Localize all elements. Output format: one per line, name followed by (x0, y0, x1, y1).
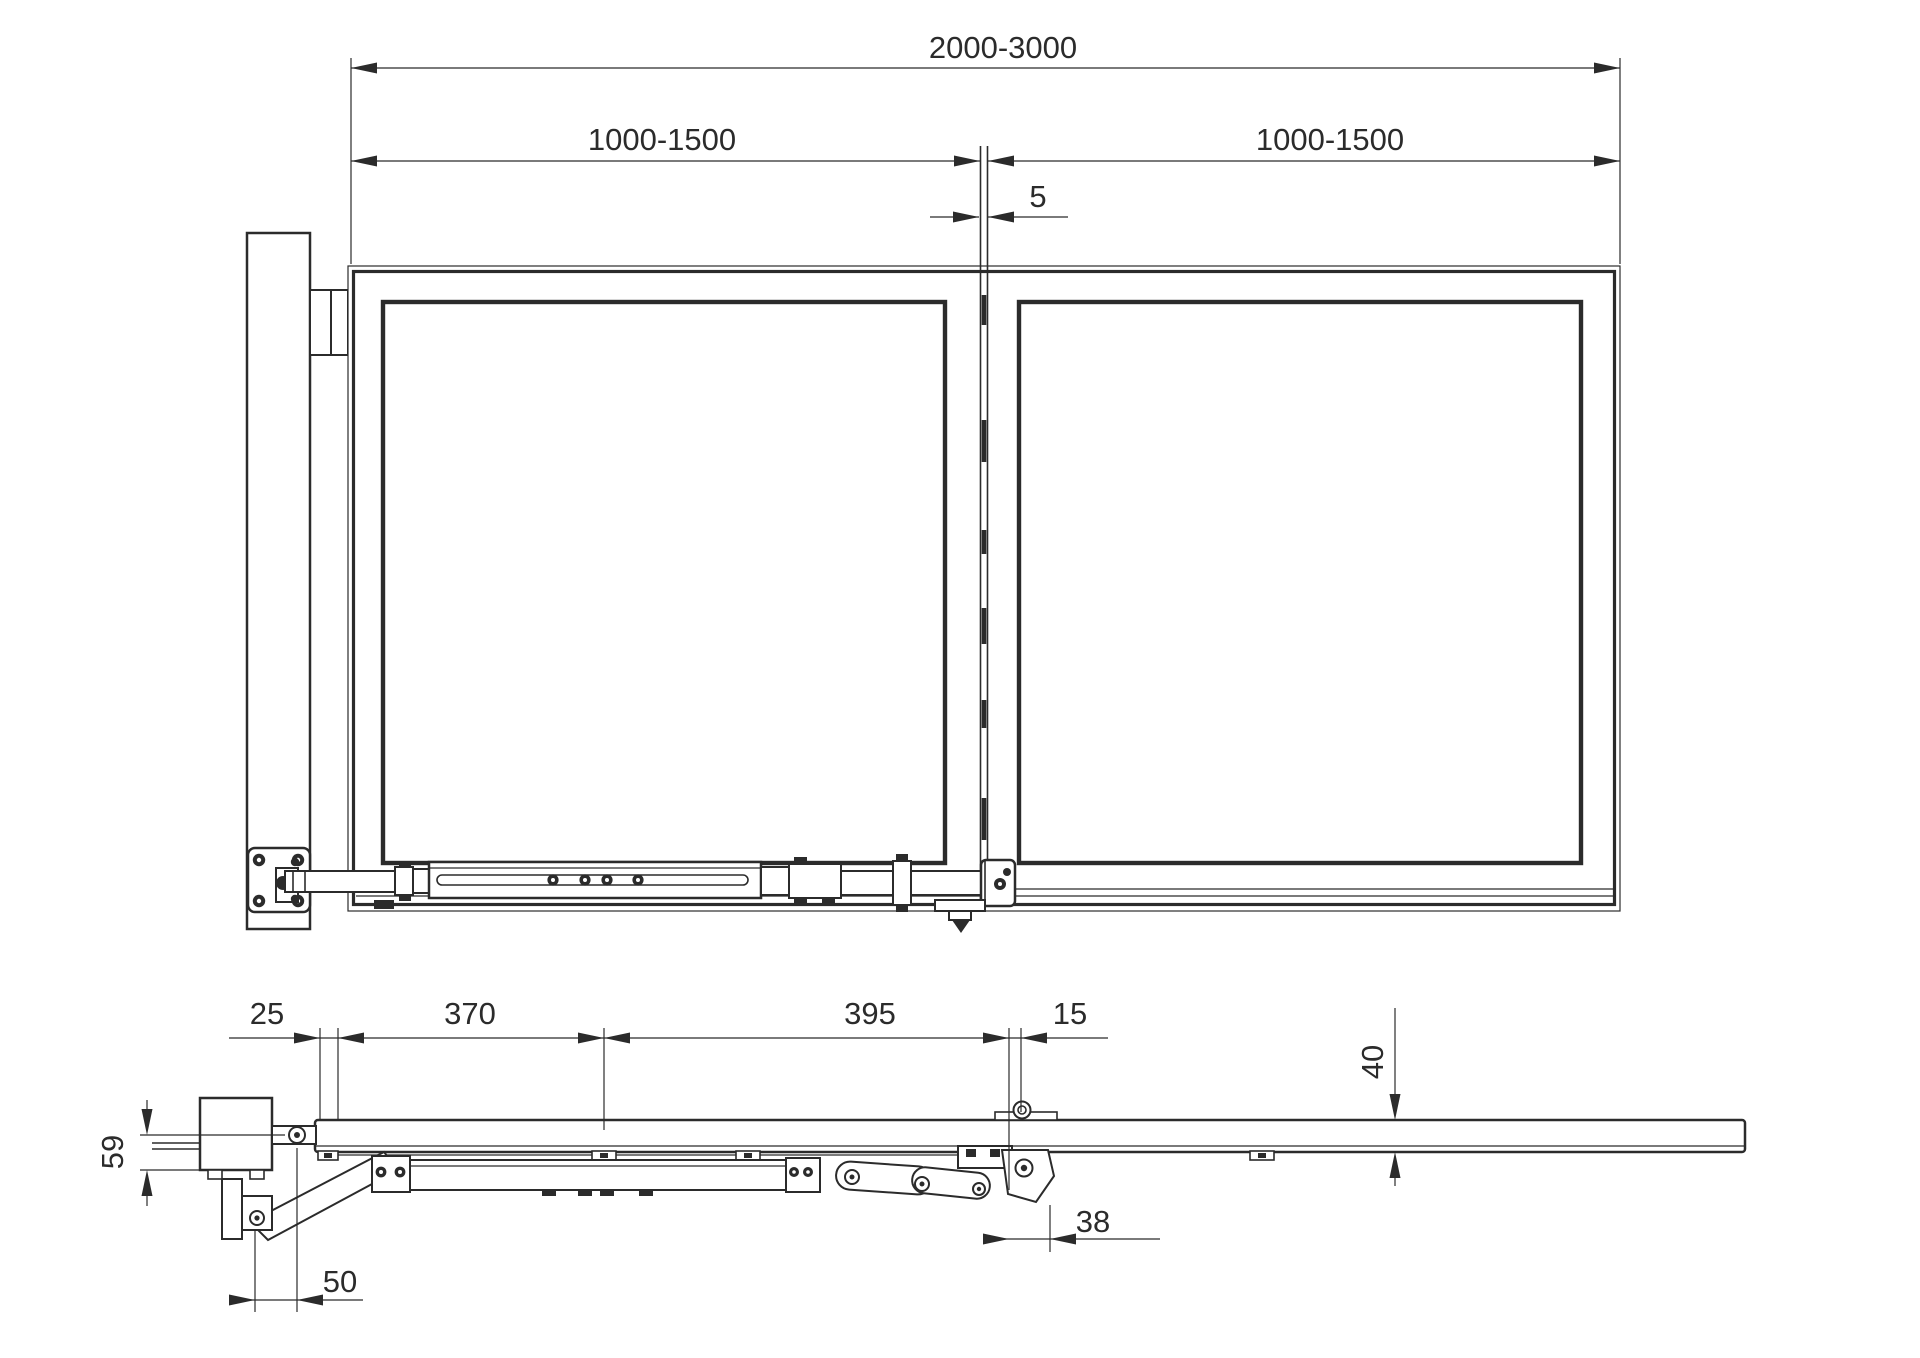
actuator-arm-plan (285, 871, 395, 892)
side-view: 25 370 395 15 40 59 38 (95, 996, 1745, 1312)
fold-hinge-eyelet (995, 1102, 1057, 1121)
slide-rail (429, 862, 761, 898)
dim-hinge-offset: 15 (1053, 996, 1087, 1031)
release-knob (935, 900, 985, 933)
wall-strip (222, 1179, 242, 1239)
dim-left-leaf-width: 1000-1500 (588, 122, 736, 157)
dim-rail-height: 40 (1355, 1045, 1390, 1079)
top-hinge-bracket (310, 290, 348, 355)
dim-wall-offset: 25 (250, 996, 284, 1031)
fold-joint-bracket (981, 860, 1015, 906)
folding-gate-drawing: 2000-3000 1000-1500 1000-1500 5 (0, 0, 1920, 1358)
dim-leaf-gap: 5 (1029, 179, 1046, 214)
mid-hinge-plate (893, 861, 911, 905)
dim-motor-height: 59 (95, 1135, 130, 1169)
technical-drawing-page: 2000-3000 1000-1500 1000-1500 5 (0, 0, 1920, 1358)
motor-box (200, 1098, 316, 1179)
dim-actuator-rear-span: 395 (844, 996, 896, 1031)
top-view-dimensions: 2000-3000 1000-1500 1000-1500 5 (351, 30, 1620, 264)
dim-hinge-bracket-width: 38 (1076, 1204, 1110, 1239)
gate-bottom-rail (315, 1120, 1745, 1152)
top-view: 2000-3000 1000-1500 1000-1500 5 (247, 30, 1620, 933)
dim-actuator-front-span: 370 (444, 996, 496, 1031)
actuator-body-side (372, 1156, 820, 1196)
dim-pivot-spacing: 50 (323, 1264, 357, 1299)
dim-total-width: 2000-3000 (929, 30, 1077, 65)
wall-post (247, 233, 310, 929)
dim-right-leaf-width: 1000-1500 (1256, 122, 1404, 157)
